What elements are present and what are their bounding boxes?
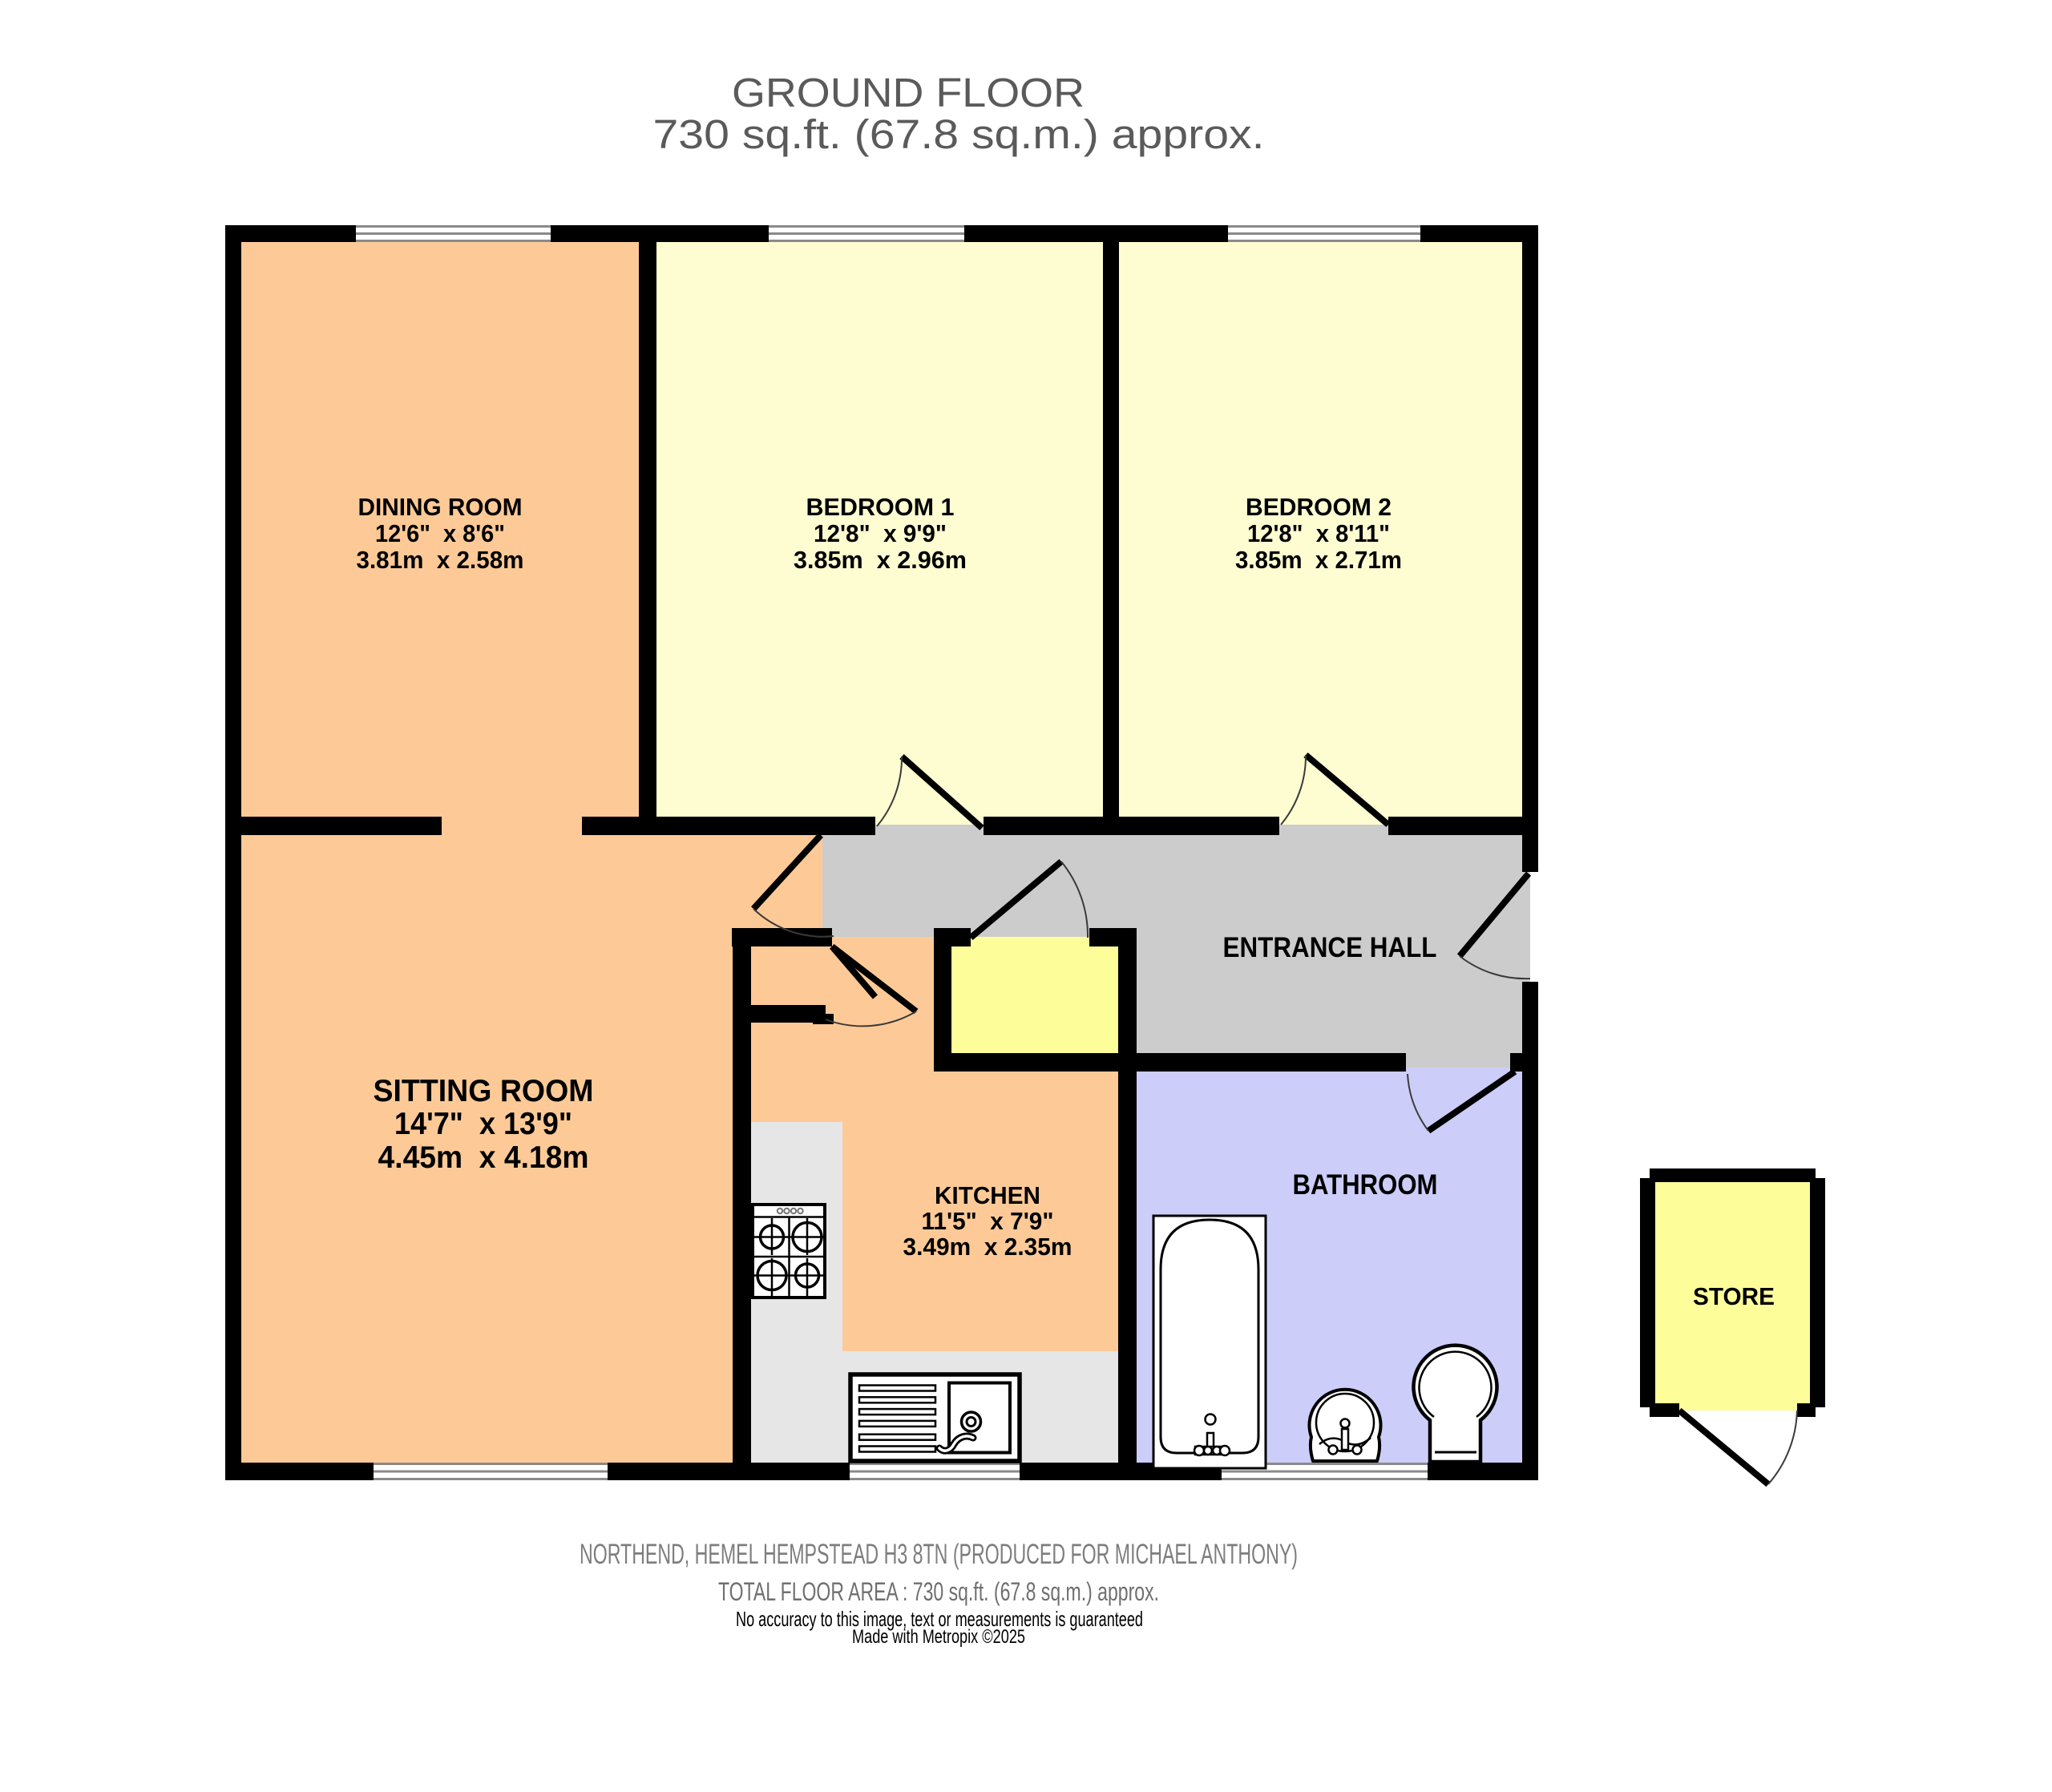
svg-text:3.85m x 2.71m: 3.85m x 2.71m [1235, 546, 1402, 574]
svg-text:NORTHEND, HEMEL HEMPSTEAD H3 8: NORTHEND, HEMEL HEMPSTEAD H3 8TN (PRODUC… [580, 1539, 1298, 1570]
svg-text:KITCHEN: KITCHEN [935, 1181, 1040, 1209]
svg-text:12'6" x 8'6": 12'6" x 8'6" [375, 519, 505, 547]
svg-text:GROUND FLOOR: GROUND FLOOR [732, 70, 1085, 115]
svg-text:STORE: STORE [1693, 1282, 1775, 1310]
svg-text:ENTRANCE HALL: ENTRANCE HALL [1223, 932, 1437, 963]
svg-text:4.45m x 4.18m: 4.45m x 4.18m [378, 1140, 589, 1175]
svg-text:11'5" x 7'9": 11'5" x 7'9" [922, 1207, 1054, 1235]
svg-text:12'8" x 8'11": 12'8" x 8'11" [1247, 519, 1390, 547]
svg-text:12'8" x 9'9": 12'8" x 9'9" [814, 519, 947, 547]
svg-text:3.81m x 2.58m: 3.81m x 2.58m [357, 546, 524, 574]
svg-text:3.85m x 2.96m: 3.85m x 2.96m [794, 546, 967, 574]
svg-text:TOTAL FLOOR AREA : 730 sq.ft.: TOTAL FLOOR AREA : 730 sq.ft. (67.8 sq.m… [718, 1577, 1159, 1606]
svg-text:730 sq.ft. (67.8 sq.m.) approx: 730 sq.ft. (67.8 sq.m.) approx. [653, 111, 1265, 157]
svg-text:14'7" x 13'9": 14'7" x 13'9" [394, 1107, 572, 1141]
svg-text:BEDROOM 2: BEDROOM 2 [1246, 493, 1392, 521]
svg-text:BATHROOM: BATHROOM [1293, 1169, 1438, 1201]
svg-text:SITTING ROOM: SITTING ROOM [374, 1074, 594, 1108]
svg-text:Made with Metropix ©2025: Made with Metropix ©2025 [852, 1626, 1025, 1648]
svg-text:3.49m x 2.35m: 3.49m x 2.35m [903, 1233, 1072, 1261]
svg-text:BEDROOM 1: BEDROOM 1 [806, 493, 955, 521]
svg-text:DINING ROOM: DINING ROOM [358, 493, 523, 521]
